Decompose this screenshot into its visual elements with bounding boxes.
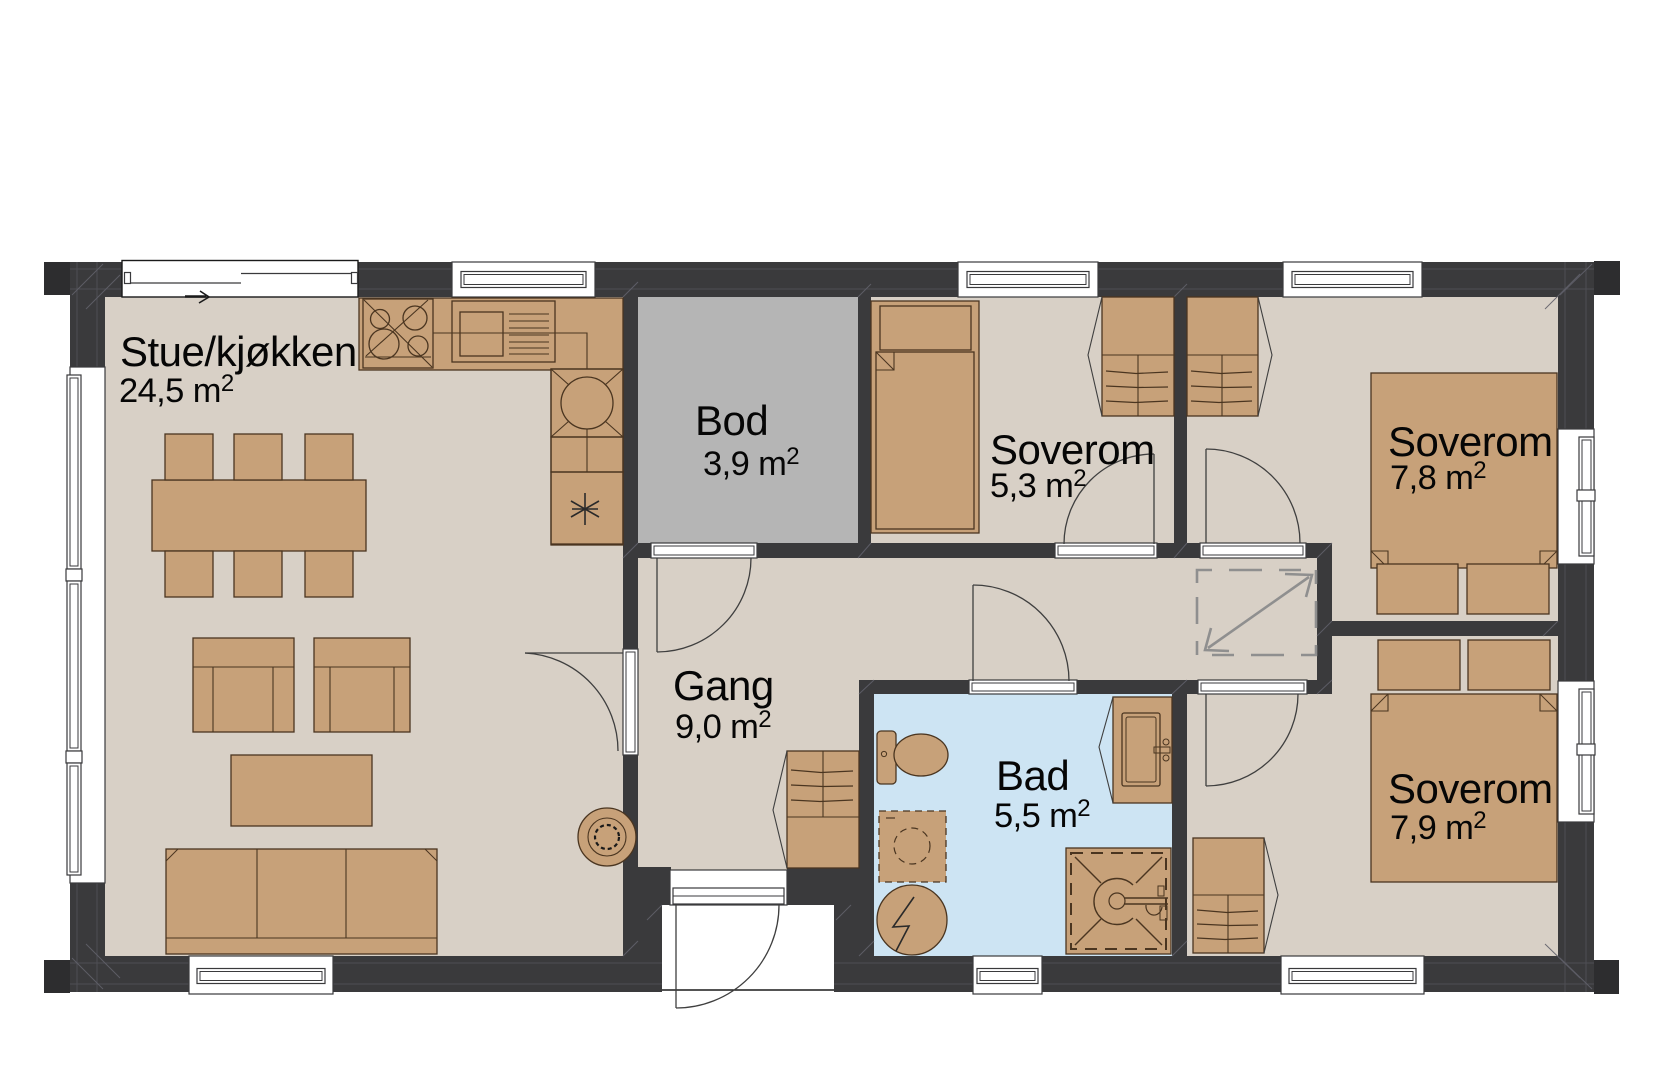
- svg-text:Stue/kjøkken: Stue/kjøkken: [120, 328, 357, 375]
- svg-text:5,3 m2: 5,3 m2: [990, 465, 1086, 505]
- svg-text:3,9 m2: 3,9 m2: [703, 443, 799, 483]
- svg-text:Soverom: Soverom: [990, 426, 1155, 473]
- svg-text:7,8 m2: 7,8 m2: [1390, 457, 1486, 497]
- svg-text:Gang: Gang: [673, 662, 774, 709]
- svg-text:24,5 m2: 24,5 m2: [119, 370, 234, 410]
- svg-text:Soverom: Soverom: [1388, 765, 1553, 812]
- svg-text:7,9 m2: 7,9 m2: [1390, 807, 1486, 847]
- svg-text:9,0 m2: 9,0 m2: [675, 706, 771, 746]
- svg-text:5,5 m2: 5,5 m2: [994, 795, 1090, 835]
- svg-text:Soverom: Soverom: [1388, 418, 1553, 465]
- svg-text:Bod: Bod: [695, 397, 768, 444]
- svg-text:Bad: Bad: [996, 752, 1069, 799]
